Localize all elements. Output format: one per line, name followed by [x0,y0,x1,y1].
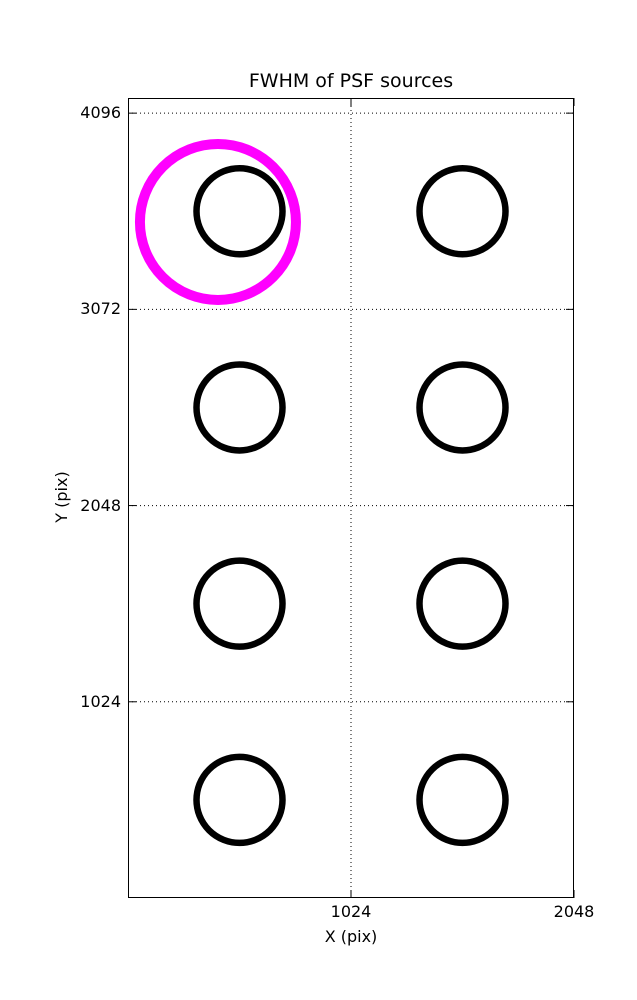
psf-sources-marker [197,364,283,450]
y-tick-label: 3072 [80,301,121,317]
y-tick-label: 1024 [80,694,121,710]
figure-canvas: FWHM of PSF sources 10242048307240961024… [0,0,637,1000]
psf-sources-marker [197,168,283,254]
psf-sources-marker [420,561,506,647]
x-tick-label: 2048 [554,904,595,920]
x-axis-label: X (pix) [128,929,574,945]
y-axis-label: Y (pix) [54,471,70,522]
x-tick-label: 1024 [331,904,372,920]
highlighted-source-marker [140,144,296,300]
y-tick-label: 2048 [80,498,121,514]
psf-sources-marker [197,561,283,647]
psf-sources-marker [420,757,506,843]
psf-sources-marker [197,757,283,843]
psf-sources-marker [420,364,506,450]
psf-sources-marker [420,168,506,254]
y-tick-label: 4096 [80,105,121,121]
